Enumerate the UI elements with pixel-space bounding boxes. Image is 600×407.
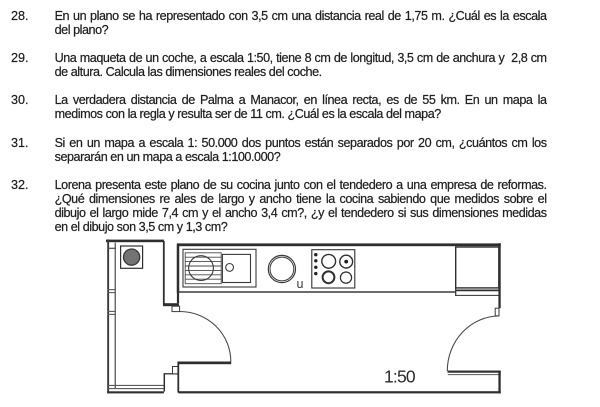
svg-text:u: u [297,277,304,291]
svg-text:1:50: 1:50 [384,367,416,387]
